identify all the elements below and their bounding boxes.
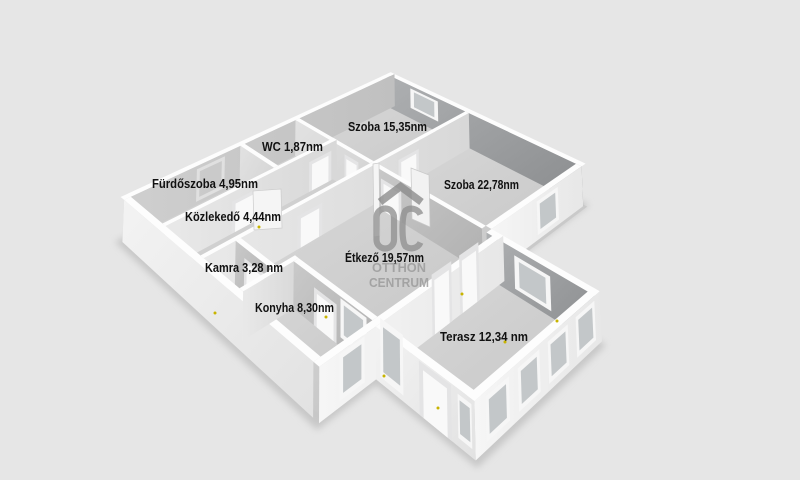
svg-text:Terasz 12,34 nm: Terasz 12,34 nm	[440, 330, 528, 344]
svg-text:CENTRUM: CENTRUM	[369, 276, 429, 290]
svg-text:Fürdőszoba 4,95nm: Fürdőszoba 4,95nm	[152, 177, 258, 191]
svg-text:Étkező 19,57nm: Étkező 19,57nm	[345, 250, 424, 265]
svg-text:Konyha 8,30nm: Konyha 8,30nm	[255, 301, 334, 315]
svg-text:Kamra 3,28 nm: Kamra 3,28 nm	[205, 261, 283, 275]
svg-text:WC 1,87nm: WC 1,87nm	[262, 140, 323, 154]
svg-text:Szoba 22,78nm: Szoba 22,78nm	[444, 178, 519, 192]
svg-text:Szoba 15,35nm: Szoba 15,35nm	[348, 120, 427, 134]
svg-text:Közlekedő 4,44nm: Közlekedő 4,44nm	[185, 210, 281, 224]
